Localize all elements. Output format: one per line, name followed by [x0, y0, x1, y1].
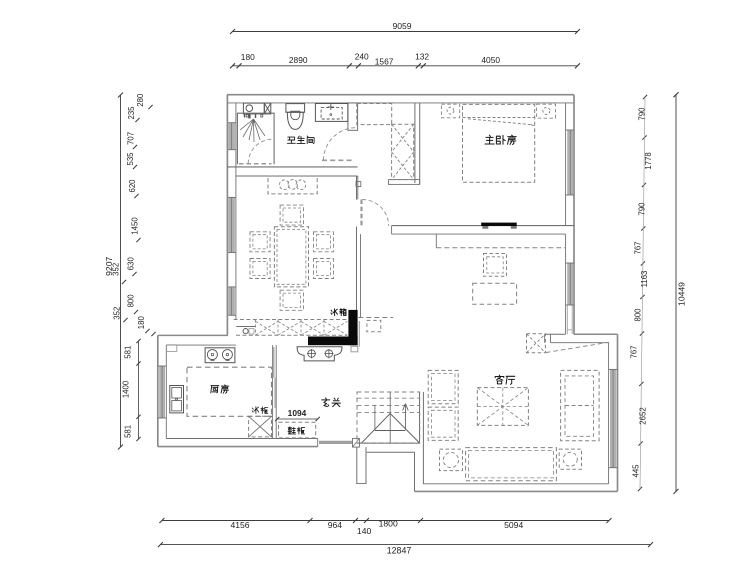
svg-text:1778: 1778: [644, 152, 653, 169]
svg-text:10449: 10449: [677, 282, 687, 306]
svg-text:352: 352: [112, 263, 121, 276]
svg-text:790: 790: [638, 202, 647, 216]
svg-text:1163: 1163: [640, 271, 649, 288]
svg-text:352: 352: [112, 307, 121, 320]
svg-text:12847: 12847: [387, 546, 412, 556]
svg-text:240: 240: [355, 52, 369, 62]
svg-text:1800: 1800: [379, 519, 398, 529]
svg-text:180: 180: [137, 316, 146, 330]
svg-text:620: 620: [128, 179, 137, 193]
svg-text:535: 535: [126, 152, 135, 166]
svg-text:707: 707: [126, 132, 135, 145]
svg-text:800: 800: [634, 308, 643, 322]
svg-text:800: 800: [127, 294, 136, 308]
svg-text:964: 964: [328, 520, 343, 530]
svg-text:4050: 4050: [481, 55, 500, 65]
svg-text:180: 180: [241, 52, 255, 62]
svg-text:1450: 1450: [131, 217, 140, 235]
svg-text:1567: 1567: [375, 57, 394, 67]
svg-text:5094: 5094: [504, 520, 523, 530]
svg-text:790: 790: [638, 107, 647, 121]
svg-text:1400: 1400: [121, 380, 130, 398]
svg-text:445: 445: [632, 464, 641, 478]
svg-text:2890: 2890: [289, 55, 308, 65]
svg-text:140: 140: [357, 526, 372, 536]
svg-text:1094: 1094: [288, 408, 307, 418]
svg-text:767: 767: [634, 241, 643, 254]
svg-text:9059: 9059: [392, 21, 411, 31]
svg-text:132: 132: [415, 52, 429, 62]
svg-text:767: 767: [630, 345, 639, 358]
svg-text:4156: 4156: [230, 520, 249, 530]
svg-text:280: 280: [136, 93, 145, 107]
svg-text:235: 235: [127, 106, 136, 120]
svg-text:581: 581: [123, 425, 132, 438]
svg-text:2652: 2652: [639, 407, 648, 424]
svg-text:630: 630: [127, 257, 136, 271]
svg-text:581: 581: [123, 346, 132, 359]
